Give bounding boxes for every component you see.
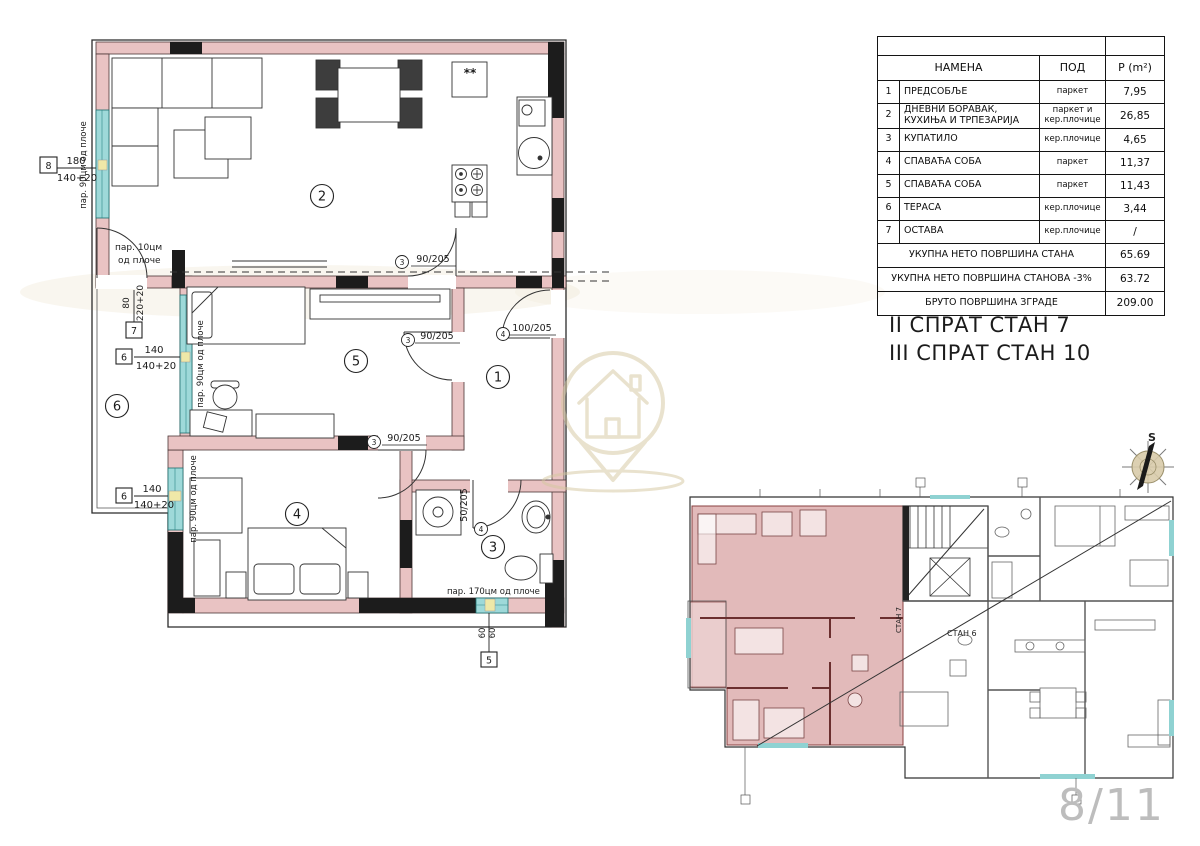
keyplan-label-stan7: СТАН 7 xyxy=(895,607,903,633)
drawing-sheet: 1 2 3 4 5 6 3 90/205 3 90/205 xyxy=(0,0,1200,846)
house-icon xyxy=(579,371,647,437)
caption-line2: III СПРАТ СТАН 10 xyxy=(889,339,1091,367)
table-summary-row: УКУПНА НЕТО ПОВРШИНА СТАНОВА -3% 63.72 xyxy=(878,267,1165,291)
note-living: пар. 90цм од плоче xyxy=(79,121,89,209)
door-tag-entrance: 4 xyxy=(501,330,506,339)
table-row: 2 ДНЕВНИ БОРАВАК, КУХИЊА И ТРПЕЗАРИЈА па… xyxy=(878,104,1165,129)
table-row: 4 СПАВАЋА СОБА паркет 11,37 xyxy=(878,151,1165,174)
window-sill-5: 60 xyxy=(488,628,498,639)
table-row xyxy=(878,37,1165,56)
table-row: 1 ПРЕДСОБЉЕ паркет 7,95 xyxy=(878,81,1165,104)
door-label-room5-hall: 90/205 xyxy=(420,331,453,342)
col-header-name: НАМЕНА xyxy=(878,56,1040,81)
terrace-inner-line xyxy=(97,286,170,508)
neighbor-walls xyxy=(903,497,1173,778)
room-label-hall: 1 xyxy=(494,371,502,386)
highlighted-terrace xyxy=(690,602,726,687)
dining-set xyxy=(316,60,422,128)
apartment-captions: II СПРАТ СТАН 7 III СПРАТ СТАН 10 xyxy=(889,311,1091,368)
window-dim-6a: 140 xyxy=(144,345,163,356)
note-room5: пар. 90цм од плоче xyxy=(196,320,206,408)
note-terrace-2: од плоче xyxy=(118,256,161,266)
window-tag-5: 5 xyxy=(486,656,492,667)
note-bedroom1: пар. 90цм од плоче xyxy=(189,455,199,543)
door-label-bedroom1: 90/205 xyxy=(387,433,420,444)
door-tag-bathroom: 4 xyxy=(479,525,484,534)
page-number: 8/11 xyxy=(1058,780,1165,831)
window-dim-7: 80 xyxy=(122,297,132,309)
table-header-row: НАМЕНА ПОД P (m²) xyxy=(878,56,1165,81)
window-dim-6b: 140 xyxy=(142,484,161,495)
door-label-bathroom: 50/205 xyxy=(459,488,470,521)
table-row: 5 СПАВАЋА СОБА паркет 11,43 xyxy=(878,174,1165,197)
door-label-entrance: 100/205 xyxy=(512,323,551,334)
note-bathroom: пар. 170цм од плоче xyxy=(447,587,540,597)
door-tag-bedroom1: 3 xyxy=(372,438,377,447)
table-row: 6 ТЕРАСА кер.плочице 3,44 xyxy=(878,197,1165,220)
bathroom-fixtures xyxy=(416,490,553,583)
room-label-bathroom: 3 xyxy=(489,541,497,556)
window-sill-6b: 140+20 xyxy=(134,500,174,511)
neighbor-furniture xyxy=(900,506,1170,747)
col-header-area: P (m²) xyxy=(1106,56,1165,81)
compass-rose: S xyxy=(1122,431,1174,493)
window-tag-6a: 6 xyxy=(121,353,127,364)
window-dim-5: 60 xyxy=(478,628,488,639)
door-tag-room5-hall: 3 xyxy=(406,336,411,345)
stair-core xyxy=(903,506,988,601)
window-tag-8: 8 xyxy=(45,161,51,172)
window-sill-7: 220+20 xyxy=(136,285,146,321)
caption-line1: II СПРАТ СТАН 7 xyxy=(889,311,1091,339)
window-sill-8: 140+20 xyxy=(57,173,97,184)
table-row: 3 КУПАТИЛО кер.плочице 4,65 xyxy=(878,128,1165,151)
area-table: НАМЕНА ПОД P (m²) 1 ПРЕДСОБЉЕ паркет 7,9… xyxy=(877,36,1165,316)
note-terrace-1: пар. 10цм xyxy=(115,243,162,253)
room-label-living: 2 xyxy=(318,190,326,205)
table-summary-row: УКУПНА НЕТО ПОВРШИНА СТАНА 65.69 xyxy=(878,243,1165,267)
kitchen-units xyxy=(452,62,552,217)
room-label-terrace: 6 xyxy=(113,400,121,415)
compass-north-label: S xyxy=(1148,431,1156,444)
key-plan: СТАН 6 СТАН 7 xyxy=(686,478,1174,804)
bedroom1-furniture xyxy=(190,478,368,600)
window-tag-6b: 6 xyxy=(121,492,127,503)
keyplan-label-stan6: СТАН 6 xyxy=(947,629,977,638)
door-label-living-room5: 90/205 xyxy=(416,254,449,265)
main-floor-plan: 1 2 3 4 5 6 3 90/205 3 90/205 xyxy=(40,40,610,667)
window-sill-6a: 140+20 xyxy=(136,361,176,372)
bedroom2-furniture xyxy=(187,287,450,438)
kitchen-mark: ** xyxy=(464,66,477,80)
room-label-bedroom1: 4 xyxy=(293,508,301,523)
col-header-floor: ПОД xyxy=(1040,56,1106,81)
coffee-tables xyxy=(174,117,251,178)
room-label-bedroom2: 5 xyxy=(352,355,360,370)
window-tag-7: 7 xyxy=(131,326,137,337)
table-row: 7 ОСТАВА кер.плочице / xyxy=(878,220,1165,243)
door-tag-living-room5: 3 xyxy=(400,258,405,267)
